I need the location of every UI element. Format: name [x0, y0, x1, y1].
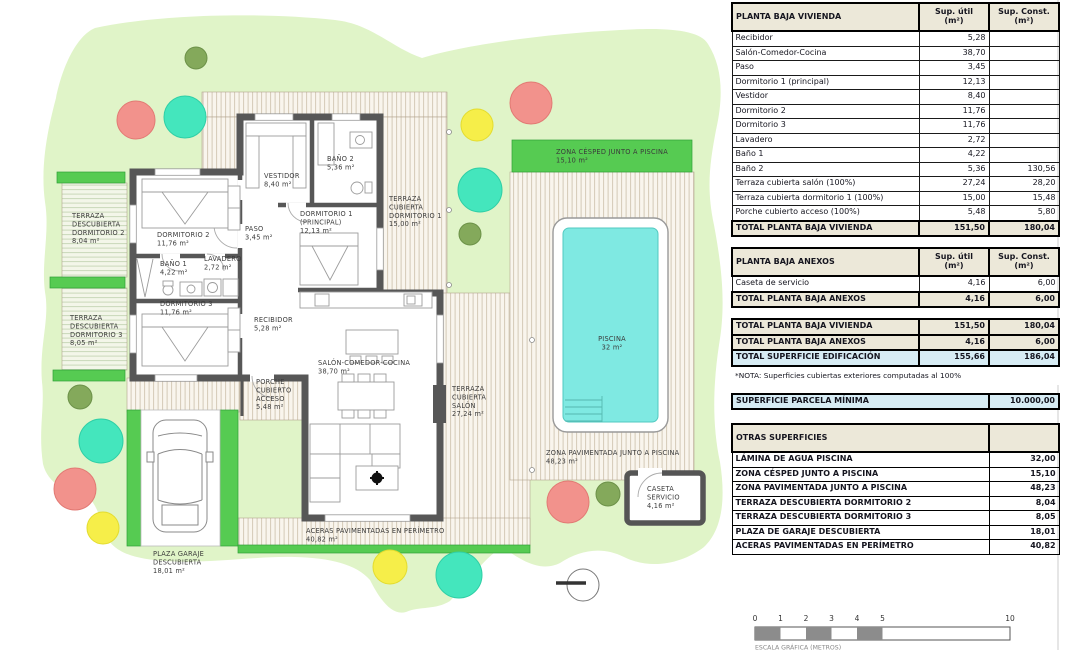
- lawn-strip-garage-left: [127, 410, 141, 546]
- survey-point-symbol: [556, 569, 599, 601]
- table-cell: Vestidor: [732, 90, 919, 105]
- table-cell: 8,05: [989, 511, 1059, 526]
- table-cell: 8,04: [989, 496, 1059, 511]
- tree-icon: [54, 468, 96, 510]
- table-cell: 32,00: [989, 452, 1059, 467]
- table-cell: 12,13: [919, 75, 989, 90]
- scale-tick: 2: [804, 614, 809, 623]
- room-label: BAÑO 25,36 m²: [327, 154, 355, 171]
- tree-icon: [68, 385, 92, 409]
- wall-pillar: [433, 385, 446, 423]
- table-row: Caseta de servicio4,166,00: [732, 276, 1059, 292]
- table-cell: 180,04: [989, 221, 1059, 237]
- area-tables-panel: PLANTA BAJA VIVIENDASup. útil (m²)Sup. C…: [731, 2, 1058, 555]
- table-cell: 6,00: [989, 335, 1059, 351]
- table-row: Baño 25,36130,56: [732, 162, 1059, 177]
- table-row: *NOTA: Superficies cubiertas exteriores …: [732, 366, 1059, 385]
- table-totales: TOTAL PLANTA BAJA VIVIENDA151,50180,04TO…: [731, 318, 1058, 385]
- tree-icon: [164, 96, 206, 138]
- table-row: Dormitorio 311,76: [732, 119, 1059, 134]
- table-cell: TOTAL PLANTA BAJA VIVIENDA: [732, 221, 919, 237]
- area-table: SUPERFICIE PARCELA MÍNIMA10.000,00: [731, 393, 1060, 411]
- tree-icon: [436, 552, 482, 598]
- table-otras-superficies: OTRAS SUPERFICIESLÁMINA DE AGUA PISCINA3…: [731, 423, 1058, 555]
- table-superficie-parcela: SUPERFICIE PARCELA MÍNIMA10.000,00: [731, 393, 1058, 411]
- site-plan-page: TERRAZADESCUBIERTADORMITORIO 28,04 m²TER…: [0, 0, 1070, 650]
- scale-caption: ESCALA GRÁFICA (METROS): [755, 643, 841, 650]
- lawn-strip: [53, 370, 125, 381]
- table-cell: 10.000,00: [989, 394, 1059, 410]
- tree-icon: [547, 481, 589, 523]
- table-cell: 4,16: [919, 335, 989, 351]
- table-cell: 5,80: [989, 206, 1059, 221]
- table-cell: 48,23: [989, 482, 1059, 497]
- table-cell: 2,72: [919, 133, 989, 148]
- table-cell: Recibidor: [732, 31, 919, 46]
- table-cell: 186,04: [989, 350, 1059, 366]
- area-table: PLANTA BAJA VIVIENDASup. útil (m²)Sup. C…: [731, 2, 1060, 237]
- zona-cesped-piscina: [512, 140, 692, 172]
- table-cell: OTRAS SUPERFICIES: [732, 424, 989, 452]
- table-cell: 11,76: [919, 119, 989, 134]
- tree-icon: [461, 109, 493, 141]
- table-row: Lavadero2,72: [732, 133, 1059, 148]
- deck-area-north: [202, 92, 447, 117]
- tree-icon: [79, 419, 123, 463]
- table-row: TERRAZA DESCUBIERTA DORMITORIO 38,05: [732, 511, 1059, 526]
- table-cell: [989, 148, 1059, 163]
- scale-tick: 3: [829, 614, 834, 623]
- scale-tick: 4: [855, 614, 860, 623]
- table-cell: [989, 90, 1059, 105]
- table-cell: 5,36: [919, 162, 989, 177]
- table-cell: 5,48: [919, 206, 989, 221]
- table-cell: PLAZA DE GARAJE DESCUBIERTA: [732, 525, 989, 540]
- tree-icon: [185, 47, 207, 69]
- table-cell: 151,50: [919, 221, 989, 237]
- table-row: LÁMINA DE AGUA PISCINA32,00: [732, 452, 1059, 467]
- table-cell: 130,56: [989, 162, 1059, 177]
- room-label: BAÑO 14,22 m²: [160, 259, 188, 276]
- table-cell: PLANTA BAJA VIVIENDA: [732, 3, 919, 31]
- table-cell: TERRAZA DESCUBIERTA DORMITORIO 3: [732, 511, 989, 526]
- table-cell: *NOTA: Superficies cubiertas exteriores …: [732, 366, 1059, 385]
- table-cell: [989, 46, 1059, 61]
- area-table: OTRAS SUPERFICIESLÁMINA DE AGUA PISCINA3…: [731, 423, 1060, 555]
- table-cell: [989, 424, 1059, 452]
- deck-area-southwest: [127, 378, 240, 412]
- table-cell: [989, 75, 1059, 90]
- table-cell: 15,10: [989, 467, 1059, 482]
- table-row: PLAZA DE GARAJE DESCUBIERTA18,01: [732, 525, 1059, 540]
- table-cell: Sup. Const. (m²): [989, 3, 1059, 31]
- deck-area-northwest: [202, 117, 240, 173]
- table-row: Porche cubierto acceso (100%)5,485,80: [732, 206, 1059, 221]
- table-cell: 28,20: [989, 177, 1059, 192]
- table-cell: 8,40: [919, 90, 989, 105]
- area-table: PLANTA BAJA ANEXOSSup. útil (m²)Sup. Con…: [731, 247, 1060, 308]
- table-cell: Lavadero: [732, 133, 919, 148]
- tree-icon: [117, 101, 155, 139]
- table-row: Baño 14,22: [732, 148, 1059, 163]
- table-cell: Dormitorio 2: [732, 104, 919, 119]
- table-cell: Porche cubierto acceso (100%): [732, 206, 919, 221]
- car-icon: [147, 420, 213, 532]
- table-row: PLANTA BAJA VIVIENDASup. útil (m²)Sup. C…: [732, 3, 1059, 31]
- table-planta-baja-vivienda: PLANTA BAJA VIVIENDASup. útil (m²)Sup. C…: [731, 2, 1058, 237]
- table-cell: Terraza cubierta salón (100%): [732, 177, 919, 192]
- table-cell: TERRAZA DESCUBIERTA DORMITORIO 2: [732, 496, 989, 511]
- table-cell: Terraza cubierta dormitorio 1 (100%): [732, 191, 919, 206]
- tree-icon: [373, 550, 407, 584]
- table-row: Terraza cubierta dormitorio 1 (100%)15,0…: [732, 191, 1059, 206]
- table-row: TOTAL PLANTA BAJA ANEXOS4,166,00: [732, 292, 1059, 308]
- scale-tick: 1: [778, 614, 783, 623]
- table-cell: LÁMINA DE AGUA PISCINA: [732, 452, 989, 467]
- pool-area: [553, 218, 668, 432]
- tree-icon: [459, 223, 481, 245]
- table-cell: 27,24: [919, 177, 989, 192]
- tree-icon: [596, 482, 620, 506]
- kitchen-counter: [300, 292, 432, 308]
- table-cell: Paso: [732, 61, 919, 76]
- scale-tick: 10: [1005, 614, 1015, 623]
- garage: [141, 410, 220, 546]
- table-cell: 4,16: [919, 276, 989, 292]
- scale-tick-labels: 01234510: [753, 614, 1015, 623]
- table-cell: 4,16: [919, 292, 989, 308]
- table-cell: Sup. útil (m²): [919, 248, 989, 276]
- tree-icon: [510, 82, 552, 124]
- table-cell: 5,28: [919, 31, 989, 46]
- table-row: Salón-Comedor-Cocina38,70: [732, 46, 1059, 61]
- lawn-strip: [57, 172, 125, 183]
- tree-icon: [458, 168, 502, 212]
- table-cell: 6,00: [989, 292, 1059, 308]
- table-cell: [989, 31, 1059, 46]
- table-cell: Baño 2: [732, 162, 919, 177]
- table-cell: TOTAL PLANTA BAJA VIVIENDA: [732, 319, 919, 335]
- room-label: PLAZA GARAJEDESCUBIERTA18,01 m²: [153, 550, 204, 575]
- table-row: TOTAL PLANTA BAJA ANEXOS4,166,00: [732, 335, 1059, 351]
- dining-table: [338, 374, 394, 418]
- table-cell: [989, 119, 1059, 134]
- room-label: PISCINA32 m²: [598, 335, 626, 351]
- pool-water: [563, 228, 658, 422]
- table-cell: Dormitorio 3: [732, 119, 919, 134]
- tree-icon: [87, 512, 119, 544]
- scale-bar: 01234510 ESCALA GRÁFICA (METROS): [753, 614, 1015, 650]
- table-row: ACERAS PAVIMENTADAS EN PERÍMETRO40,82: [732, 540, 1059, 555]
- table-cell: 15,00: [919, 191, 989, 206]
- table-cell: ZONA CÉSPED JUNTO A PISCINA: [732, 467, 989, 482]
- table-cell: 3,45: [919, 61, 989, 76]
- table-cell: 40,82: [989, 540, 1059, 555]
- laundry-fixtures: [204, 279, 238, 296]
- table-cell: TOTAL SUPERFICIE EDIFICACIÓN: [732, 350, 919, 366]
- table-cell: 38,70: [919, 46, 989, 61]
- table-cell: SUPERFICIE PARCELA MÍNIMA: [732, 394, 989, 410]
- table-cell: ACERAS PAVIMENTADAS EN PERÍMETRO: [732, 540, 989, 555]
- table-row: TERRAZA DESCUBIERTA DORMITORIO 28,04: [732, 496, 1059, 511]
- table-row: Vestidor8,40: [732, 90, 1059, 105]
- table-row: Paso3,45: [732, 61, 1059, 76]
- table-cell: Sup. Const. (m²): [989, 248, 1059, 276]
- table-cell: [989, 133, 1059, 148]
- table-cell: ZONA PAVIMENTADA JUNTO A PISCINA: [732, 482, 989, 497]
- table-cell: TOTAL PLANTA BAJA ANEXOS: [732, 335, 919, 351]
- table-row: Dormitorio 211,76: [732, 104, 1059, 119]
- table-row: PLANTA BAJA ANEXOSSup. útil (m²)Sup. Con…: [732, 248, 1059, 276]
- table-cell: 4,22: [919, 148, 989, 163]
- table-cell: 18,01: [989, 525, 1059, 540]
- table-cell: Salón-Comedor-Cocina: [732, 46, 919, 61]
- scale-tick: 5: [880, 614, 885, 623]
- table-cell: Baño 1: [732, 148, 919, 163]
- lawn-strip: [50, 277, 125, 288]
- table-cell: 15,48: [989, 191, 1059, 206]
- table-cell: Sup. útil (m²): [919, 3, 989, 31]
- table-cell: Caseta de servicio: [732, 276, 919, 292]
- bed-dorm2-icon: [142, 179, 228, 228]
- table-row: Terraza cubierta salón (100%)27,2428,20: [732, 177, 1059, 192]
- scale-tick: 0: [753, 614, 758, 623]
- table-row: Dormitorio 1 (principal)12,13: [732, 75, 1059, 90]
- area-table: TOTAL PLANTA BAJA VIVIENDA151,50180,04TO…: [731, 318, 1060, 385]
- table-cell: 6,00: [989, 276, 1059, 292]
- table-cell: PLANTA BAJA ANEXOS: [732, 248, 919, 276]
- table-row: ZONA PAVIMENTADA JUNTO A PISCINA48,23: [732, 482, 1059, 497]
- table-row: Recibidor5,28: [732, 31, 1059, 46]
- table-row: TOTAL PLANTA BAJA VIVIENDA151,50180,04: [732, 221, 1059, 237]
- table-row: TOTAL PLANTA BAJA VIVIENDA151,50180,04: [732, 319, 1059, 335]
- table-row: TOTAL SUPERFICIE EDIFICACIÓN155,66186,04: [732, 350, 1059, 366]
- table-cell: 180,04: [989, 319, 1059, 335]
- table-row: OTRAS SUPERFICIES: [732, 424, 1059, 452]
- table-row: ZONA CÉSPED JUNTO A PISCINA15,10: [732, 467, 1059, 482]
- table-cell: 11,76: [919, 104, 989, 119]
- table-cell: Dormitorio 1 (principal): [732, 75, 919, 90]
- bed-dorm3-icon: [142, 314, 228, 366]
- table-cell: 155,66: [919, 350, 989, 366]
- table-cell: [989, 104, 1059, 119]
- bed-dorm1-icon: [300, 233, 358, 285]
- table-cell: TOTAL PLANTA BAJA ANEXOS: [732, 292, 919, 308]
- table-cell: [989, 61, 1059, 76]
- table-planta-baja-anexos: PLANTA BAJA ANEXOSSup. útil (m²)Sup. Con…: [731, 247, 1058, 308]
- table-cell: 151,50: [919, 319, 989, 335]
- lawn-strip-garage-right: [220, 410, 238, 546]
- table-row: SUPERFICIE PARCELA MÍNIMA10.000,00: [732, 394, 1059, 410]
